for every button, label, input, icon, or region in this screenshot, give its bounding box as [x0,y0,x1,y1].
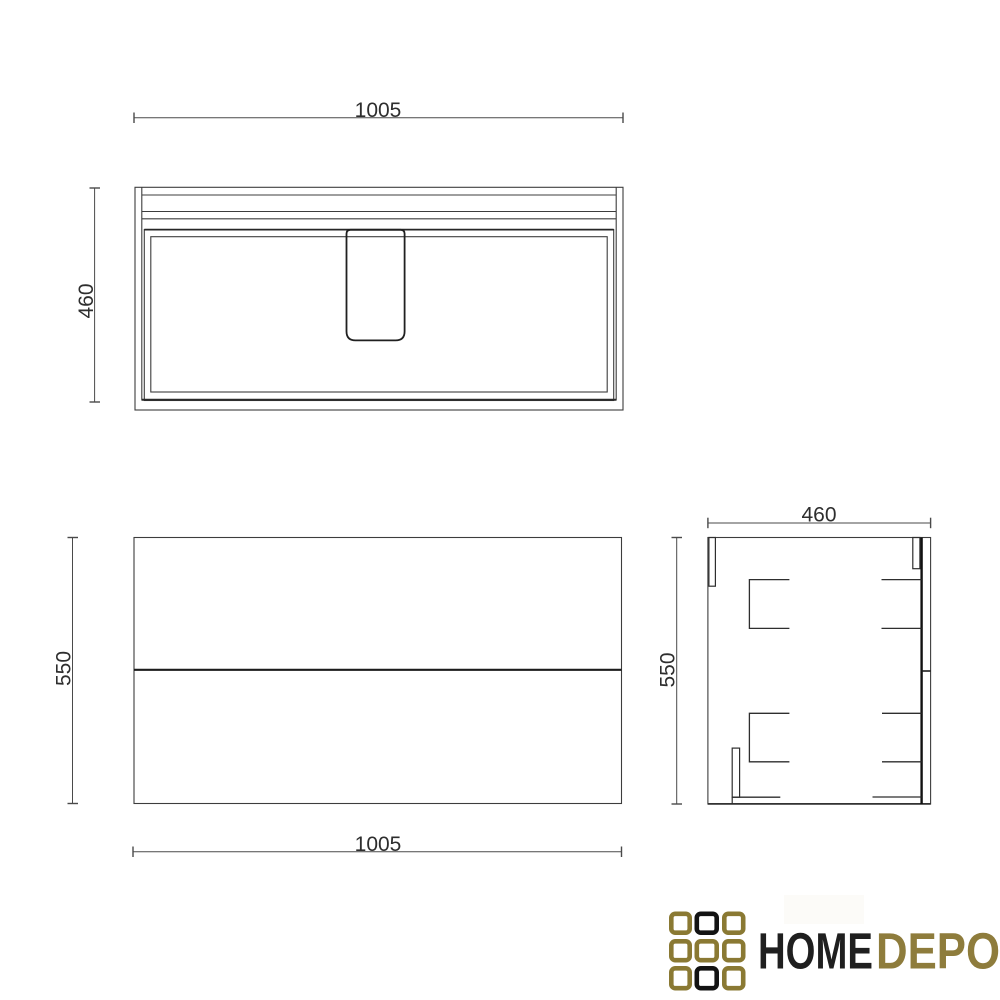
svg-text:550: 550 [53,651,76,686]
svg-text:460: 460 [801,504,836,527]
svg-text:1005: 1005 [355,99,402,122]
svg-text:HOME: HOME [758,923,873,980]
svg-text:550: 550 [657,652,680,687]
svg-text:460: 460 [75,283,98,318]
svg-text:1005: 1005 [355,833,402,856]
svg-text:DEPO: DEPO [876,923,1000,980]
